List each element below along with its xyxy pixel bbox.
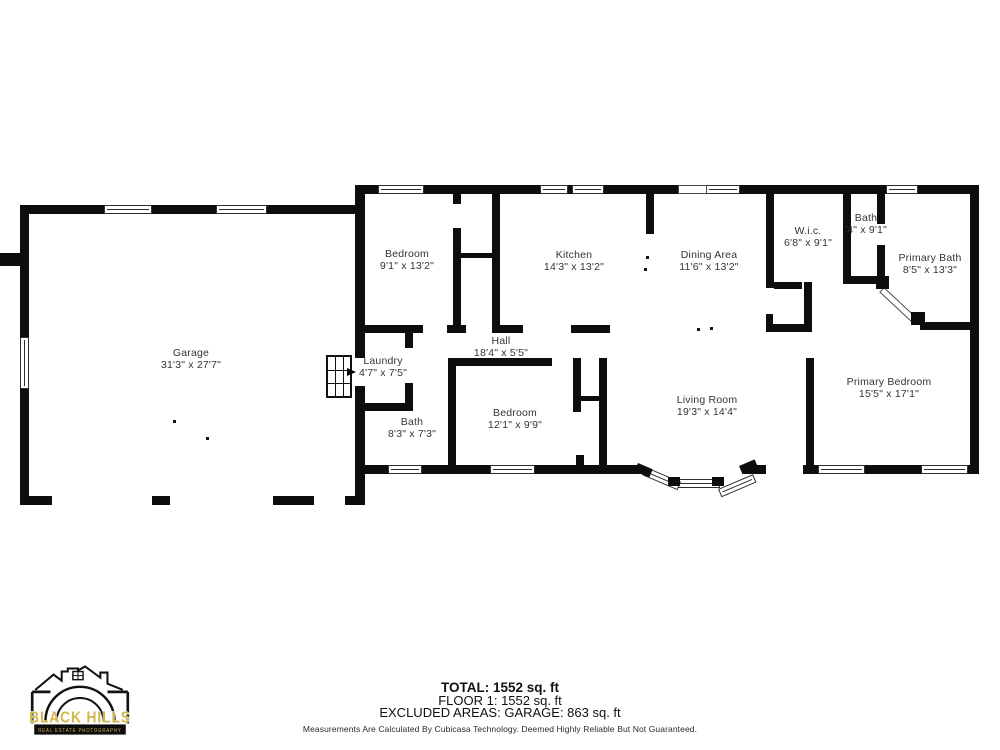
wall xyxy=(355,386,365,505)
room-name: Bedroom xyxy=(380,248,434,260)
black-hills-logo: BLACK HILLS REAL ESTATE PHOTOGRAPHY xyxy=(20,658,140,740)
wall xyxy=(447,325,466,333)
wall xyxy=(581,396,601,401)
room-dimensions: '4" x 9'1" xyxy=(845,224,887,236)
room-label-primary-bath: Primary Bath8'5" x 13'3" xyxy=(898,252,961,276)
room-label-dining-area: Dining Area11'6" x 13'2" xyxy=(679,249,738,273)
wall xyxy=(865,465,922,474)
window xyxy=(388,465,422,474)
room-label-living-room: Living Room19'3" x 14'4" xyxy=(677,394,738,418)
room-dimensions: 15'5" x 17'1" xyxy=(847,388,932,400)
wall xyxy=(806,358,814,468)
room-name: Dining Area xyxy=(679,249,738,261)
room-label-bath: Bath8'3" x 7'3" xyxy=(388,416,436,440)
wall xyxy=(599,358,607,472)
room-label-garage: Garage31'3" x 27'7" xyxy=(161,347,221,371)
excluded-area-text: EXCLUDED AREAS: GARAGE: 863 sq. ft xyxy=(0,705,1000,720)
wall xyxy=(152,496,170,505)
door-opening xyxy=(678,185,707,194)
room-dimensions: 19'3" x 14'4" xyxy=(677,406,738,418)
disclaimer-text: Measurements Are Calculated By Cubicasa … xyxy=(0,724,1000,734)
fixture-mark xyxy=(697,328,700,331)
fixture-mark xyxy=(173,420,176,423)
window xyxy=(818,465,865,474)
fixture-mark xyxy=(644,268,647,271)
window xyxy=(886,185,918,194)
stairs-icon xyxy=(326,355,352,398)
room-dimensions: 31'3" x 27'7" xyxy=(161,359,221,371)
floorplan-page: Garage31'3" x 27'7"Bedroom9'1" x 13'2"Ki… xyxy=(0,0,1000,750)
wall xyxy=(273,496,314,505)
wall xyxy=(448,358,456,465)
room-name: Bath xyxy=(388,416,436,428)
logo-subtitle-text: REAL ESTATE PHOTOGRAPHY xyxy=(38,728,121,734)
room-label-laundry: Laundry4'7" x 7'5" xyxy=(359,355,407,379)
fixture-mark xyxy=(710,327,713,330)
room-name: Living Room xyxy=(677,394,738,406)
wall xyxy=(492,192,500,333)
wall-cap xyxy=(668,477,680,486)
wall-cap xyxy=(911,312,925,325)
window xyxy=(490,465,535,474)
wall-cap xyxy=(876,276,889,289)
room-label-w-i-c-: W.i.c.6'8" x 9'1" xyxy=(784,225,832,249)
wall xyxy=(766,192,774,288)
room-dimensions: 11'6" x 13'2" xyxy=(679,261,738,273)
room-label-bedroom: Bedroom9'1" x 13'2" xyxy=(380,248,434,272)
fixture-mark xyxy=(206,437,209,440)
wall xyxy=(365,325,423,333)
wall xyxy=(573,358,581,412)
room-name: Garage xyxy=(161,347,221,359)
floor-plan-canvas: Garage31'3" x 27'7"Bedroom9'1" x 13'2"Ki… xyxy=(0,0,1000,750)
window xyxy=(540,185,568,194)
room-dimensions: 18'4" x 5'5" xyxy=(474,347,528,359)
wall xyxy=(843,192,851,284)
room-name: Primary Bath xyxy=(898,252,961,264)
wall xyxy=(405,333,413,348)
wall xyxy=(968,465,979,474)
room-name: Bath xyxy=(845,212,887,224)
window xyxy=(572,185,604,194)
wall xyxy=(766,314,773,324)
wall xyxy=(774,282,802,289)
wall xyxy=(461,253,492,258)
logo-title-text: BLACK HILLS xyxy=(29,709,131,726)
wall xyxy=(571,325,610,333)
wall-cap xyxy=(712,477,724,486)
wall xyxy=(365,403,413,411)
room-dimensions: 12'1" x 9'9" xyxy=(488,419,542,431)
room-name: W.i.c. xyxy=(784,225,832,237)
room-label-bath: Bath'4" x 9'1" xyxy=(845,212,887,236)
room-dimensions: 8'5" x 13'3" xyxy=(898,264,961,276)
wall-cap xyxy=(634,463,652,478)
room-label-kitchen: Kitchen14'3" x 13'2" xyxy=(544,249,604,273)
room-name: Laundry xyxy=(359,355,407,367)
wall xyxy=(646,192,654,234)
room-name: Kitchen xyxy=(544,249,604,261)
wall xyxy=(20,205,364,214)
room-dimensions: 4'7" x 7'5" xyxy=(359,367,407,379)
room-dimensions: 6'8" x 9'1" xyxy=(784,237,832,249)
window xyxy=(921,465,968,474)
wall xyxy=(453,194,461,204)
wall xyxy=(20,496,52,505)
wall xyxy=(576,455,584,466)
fixture-mark xyxy=(646,256,649,259)
wall xyxy=(355,185,365,358)
room-label-bedroom: Bedroom12'1" x 9'9" xyxy=(488,407,542,431)
room-dimensions: 9'1" x 13'2" xyxy=(380,260,434,272)
window xyxy=(378,185,424,194)
room-name: Hall xyxy=(474,335,528,347)
room-dimensions: 14'3" x 13'2" xyxy=(544,261,604,273)
entry-arrow-icon xyxy=(347,368,356,376)
room-name: Bedroom xyxy=(488,407,542,419)
wall xyxy=(920,322,970,330)
room-label-primary-bedroom: Primary Bedroom15'5" x 17'1" xyxy=(847,376,932,400)
room-dimensions: 8'3" x 7'3" xyxy=(388,428,436,440)
window xyxy=(216,205,267,214)
wall xyxy=(766,324,812,332)
room-label-hall: Hall18'4" x 5'5" xyxy=(474,335,528,359)
window xyxy=(706,185,740,194)
room-name: Primary Bedroom xyxy=(847,376,932,388)
window xyxy=(20,337,29,389)
wall xyxy=(492,325,523,333)
wall xyxy=(970,185,979,474)
wall xyxy=(453,228,461,328)
wall xyxy=(448,358,552,366)
window xyxy=(104,205,152,214)
